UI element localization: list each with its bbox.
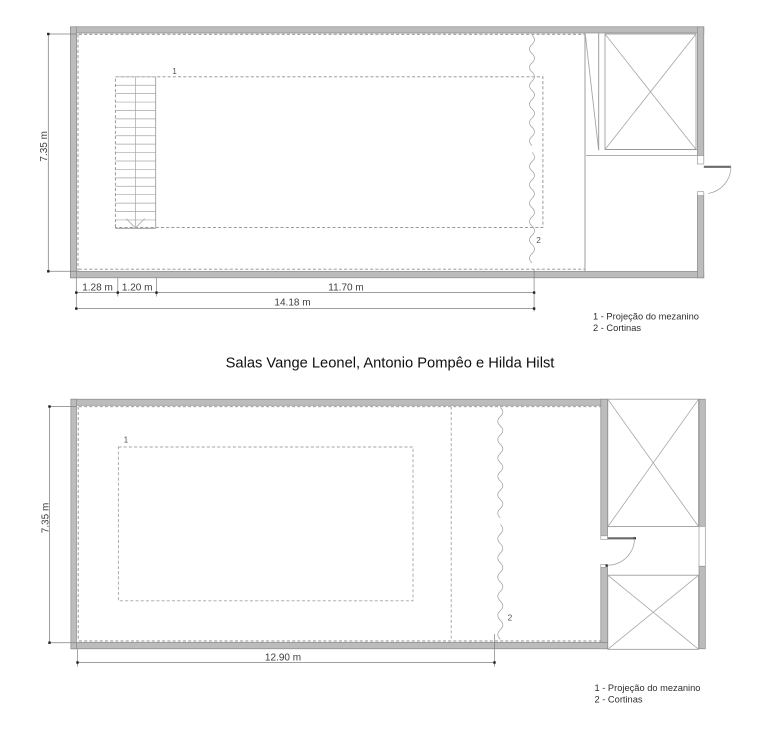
svg-text:12.90 m: 12.90 m <box>265 652 301 663</box>
svg-text:2 - Cortinas: 2 - Cortinas <box>595 694 643 704</box>
svg-text:1 - Projeção do mezanino: 1 - Projeção do mezanino <box>593 312 699 322</box>
svg-text:11.70 m: 11.70 m <box>328 282 363 293</box>
svg-text:1.28 m: 1.28 m <box>82 282 113 293</box>
svg-text:1 - Projeção do mezanino: 1 - Projeção do mezanino <box>595 683 701 693</box>
svg-text:1.20 m: 1.20 m <box>122 282 153 293</box>
svg-text:2: 2 <box>536 235 541 245</box>
svg-text:1: 1 <box>172 66 177 76</box>
svg-text:2 - Cortinas: 2 - Cortinas <box>593 323 641 333</box>
svg-text:14.18 m: 14.18 m <box>274 297 310 308</box>
svg-text:2: 2 <box>508 612 513 622</box>
svg-text:7.35 m: 7.35 m <box>40 503 51 534</box>
svg-text:1: 1 <box>124 434 129 444</box>
svg-text:Salas Vange Leonel, Antonio Po: Salas Vange Leonel, Antonio Pompêo e Hil… <box>226 355 555 371</box>
svg-text:7.35 m: 7.35 m <box>39 131 50 162</box>
